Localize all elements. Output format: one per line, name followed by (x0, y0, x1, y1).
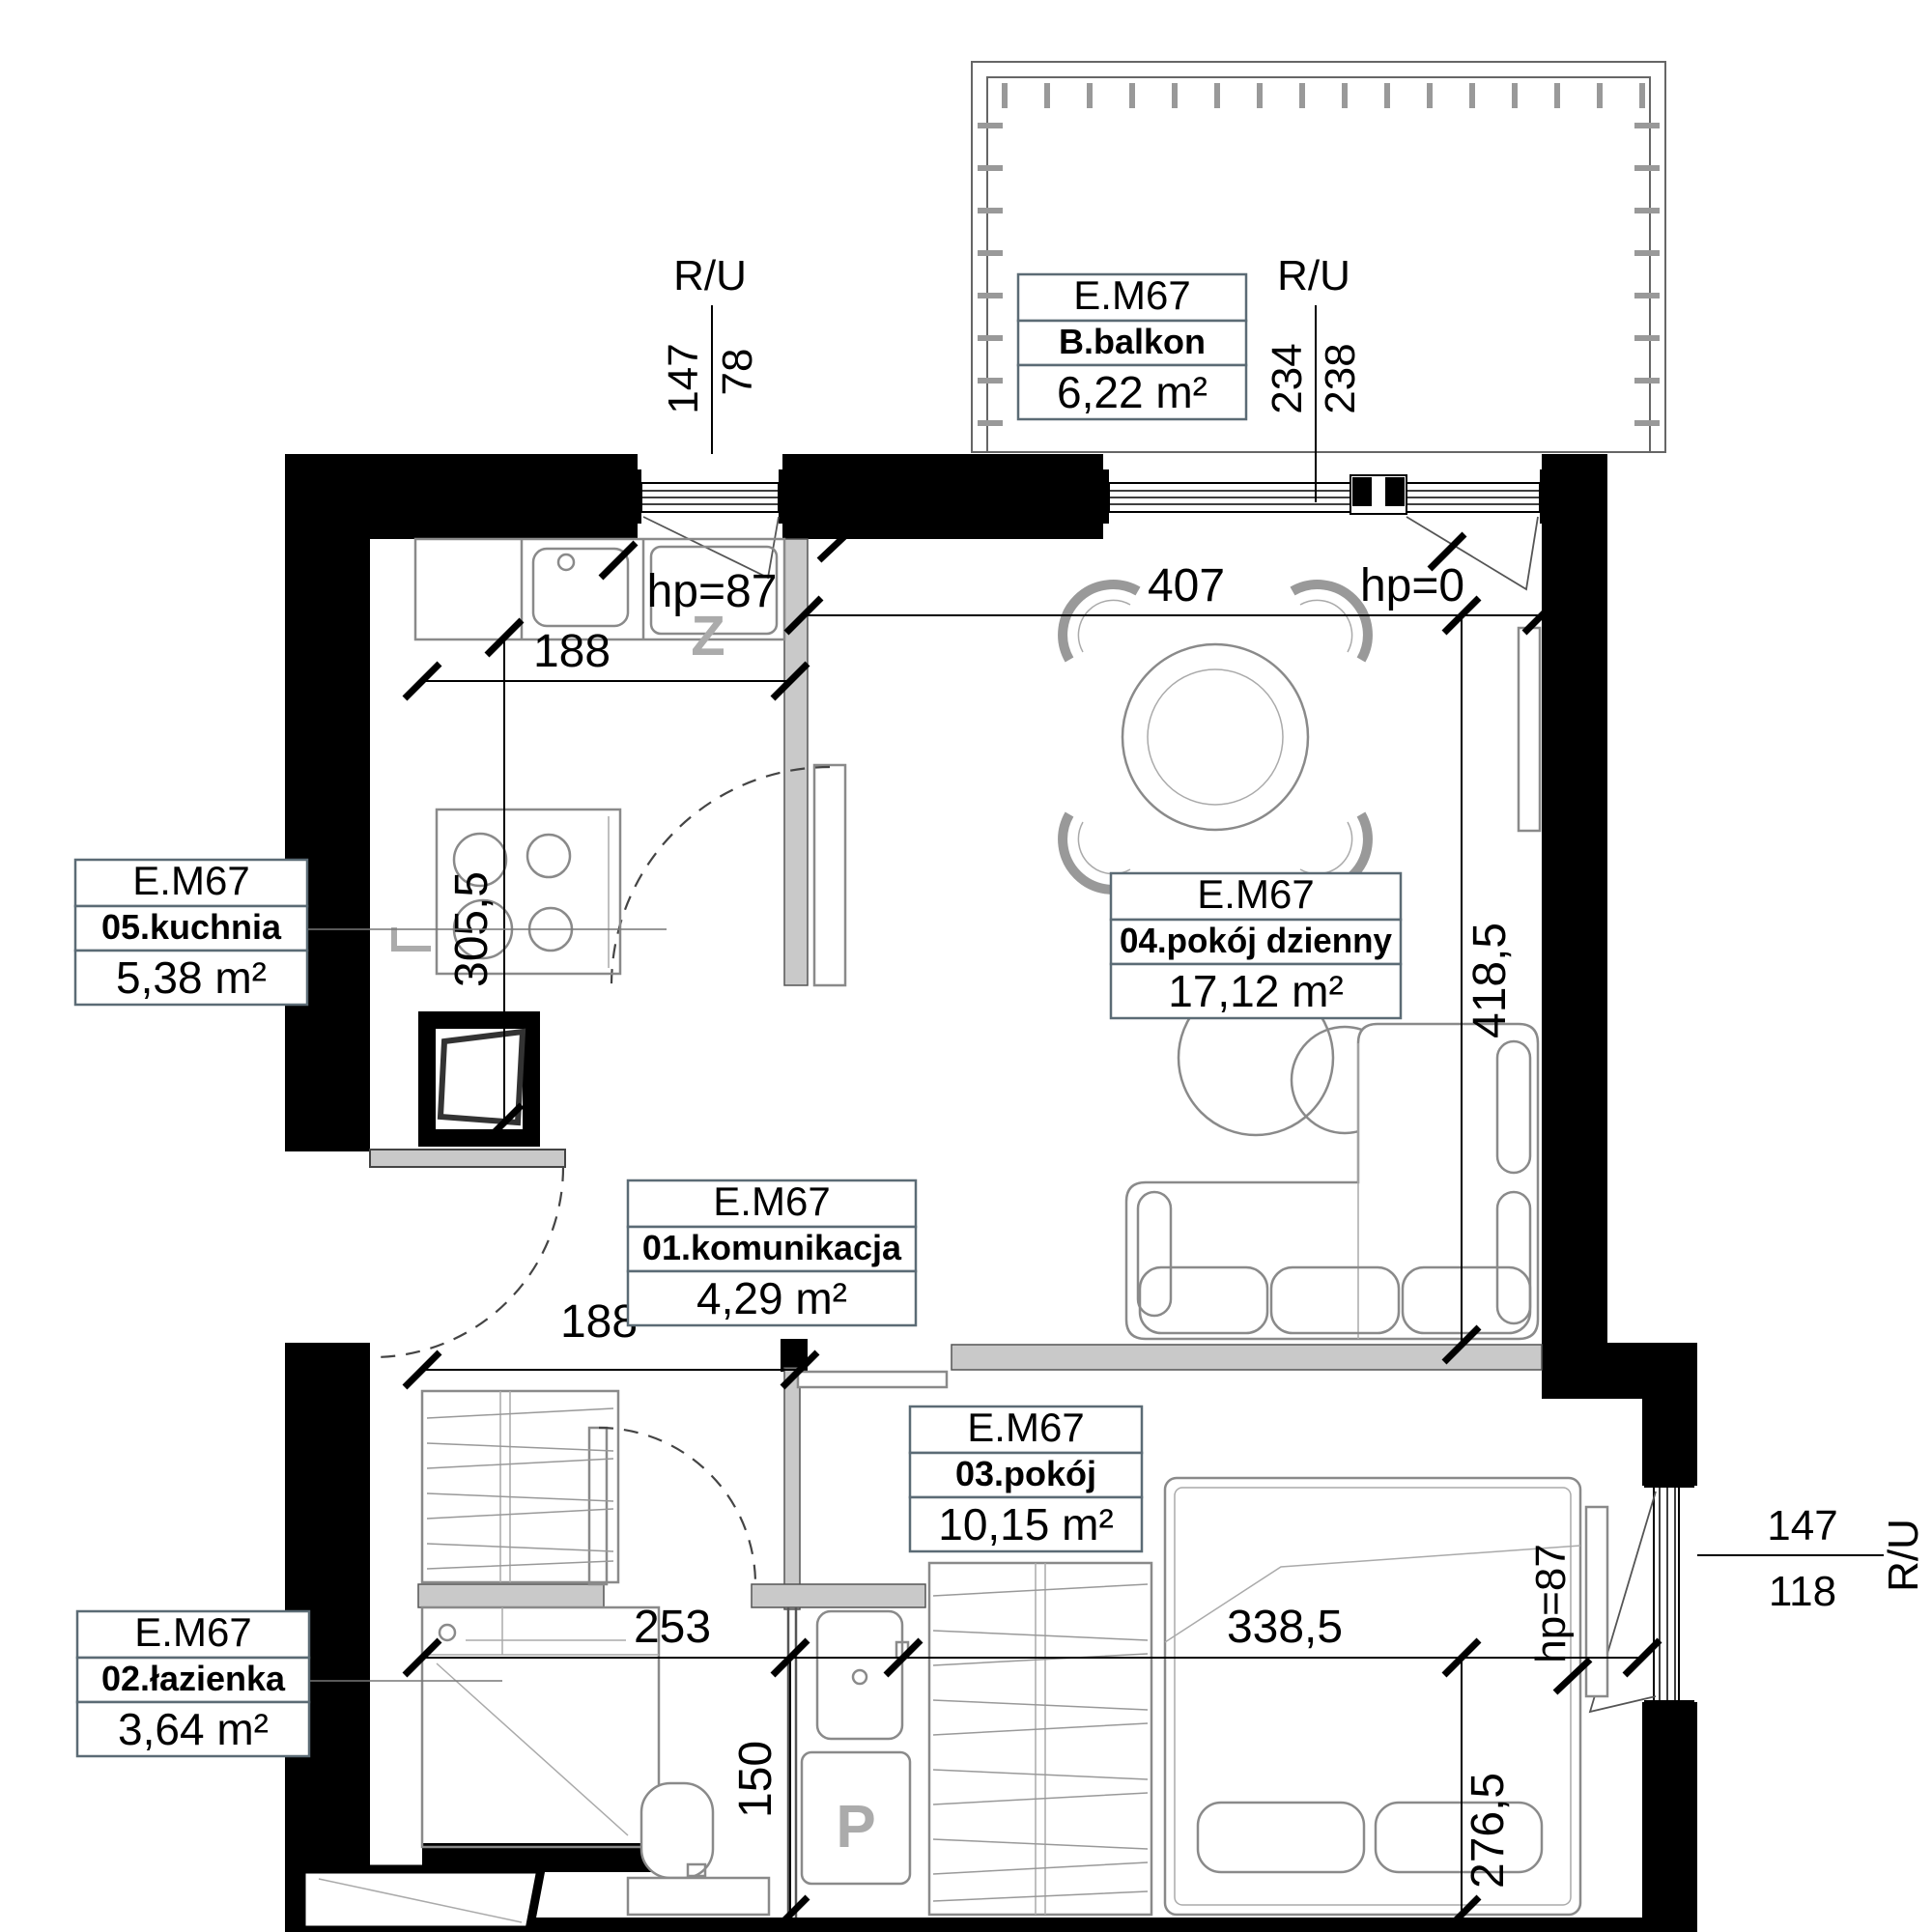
hall-wardrobe-hatch (427, 1408, 613, 1569)
ru-marker-balcony: R/U 234 238 (1264, 252, 1364, 502)
dim-bath-width: 253 (634, 1602, 711, 1653)
ru-marker-bedroom: 147 118 R/U (1697, 1502, 1927, 1615)
bed (1165, 1478, 1580, 1915)
kitchen-window-sill-label: hp=87 (647, 566, 778, 617)
washing-machine: P (802, 1752, 910, 1884)
floor-plan: P Z hp=87 407 hp=0 188 305,5 418,5 188 2… (0, 0, 1932, 1932)
bathroom-door (589, 1428, 755, 1584)
chair-se-inner (1300, 822, 1352, 874)
wall-top-middle (782, 454, 1103, 539)
dining-table-inner (1148, 669, 1283, 805)
ru-balcony-height: 238 (1317, 343, 1364, 413)
bedroom-sliding-door-leaf (798, 1372, 947, 1387)
ru-bedroom-width: 147 (1767, 1502, 1837, 1549)
balcony-door-mullion-a (1352, 477, 1372, 506)
ru-balcony-label: R/U (1277, 252, 1350, 299)
balkon-name: B.balkon (1059, 322, 1206, 361)
label-pokoj-dzienny: E.M67 04.pokój dzienny 17,12 m² (1111, 871, 1401, 1018)
chair-ne (1293, 584, 1368, 660)
ru-bedroom-label: R/U (1880, 1519, 1927, 1592)
label-pokoj: E.M67 03.pokój 10,15 m² (910, 1405, 1142, 1551)
partition-hall-bedroom (784, 1368, 800, 1609)
lazienka-name: 02.łazienka (101, 1659, 286, 1698)
chair-nw-inner (1078, 600, 1130, 652)
dining-table (1122, 644, 1308, 830)
dim-bedroom-width: 338,5 (1227, 1602, 1343, 1653)
bedroom-wardrobe-hatch (933, 1584, 1148, 1901)
ventilation-shaft (418, 1011, 540, 1147)
label-kuchnia: E.M67 05.kuchnia 5,38 m² (75, 858, 667, 1005)
pokoj-area: 10,15 m² (938, 1499, 1114, 1549)
bath-sink (817, 1611, 908, 1739)
bedroom-radiator (1586, 1507, 1607, 1696)
dim-living-width: 407 (1148, 560, 1225, 611)
toilet-tank (628, 1878, 769, 1915)
label-balkon: E.M67 B.balkon 6,22 m² (1018, 272, 1246, 419)
balcony-door-mullion-b (1385, 477, 1405, 506)
pokoj-dzienny-code: E.M67 (1197, 871, 1314, 917)
label-komunikacja: E.M67 01.komunikacja 4,29 m² (628, 1179, 916, 1325)
wall-bedroom-right-lower (1642, 1702, 1697, 1918)
balkon-area: 6,22 m² (1057, 367, 1207, 417)
bedroom-window-jamb-bottom (1644, 1700, 1694, 1719)
washing-machine-symbol: P (836, 1794, 875, 1861)
kitchen-door (611, 765, 845, 985)
kitchen-window-jamb-right (779, 469, 794, 524)
komunikacja-area: 4,29 m² (696, 1273, 847, 1323)
dim-bath-strip-depth: 150 (730, 1741, 781, 1818)
dining-chairs (1063, 584, 1368, 890)
vanity-faucet (440, 1625, 455, 1640)
entrance-door-swing (373, 1167, 563, 1357)
ru-balcony-width: 234 (1264, 343, 1311, 413)
wall-right-upper (1542, 539, 1607, 1343)
bedroom-window-jamb-top (1644, 1468, 1694, 1488)
bathtub-diagonal (437, 1663, 628, 1835)
bathroom-door-swing (599, 1428, 755, 1584)
living-radiator (1519, 628, 1540, 831)
kitchen-sink-faucet (558, 554, 574, 570)
komunikacja-code: E.M67 (713, 1179, 830, 1224)
ru-top-left-label: R/U (673, 252, 747, 299)
partition-bath-top-left (418, 1584, 604, 1607)
lazienka-area: 3,64 m² (118, 1704, 269, 1754)
dim-kitchen-width: 188 (533, 626, 611, 677)
kuchnia-area: 5,38 m² (116, 952, 267, 1003)
bedroom-window-sill-label: hp=87 (1527, 1544, 1575, 1663)
partition-bath-top-right (752, 1584, 925, 1607)
pokoj-code: E.M67 (967, 1405, 1084, 1450)
pokoj-name: 03.pokój (955, 1454, 1096, 1493)
balcony-door-jamb-right (1540, 469, 1555, 524)
balcony-door-jamb-left (1094, 469, 1109, 524)
dim-living-door-sill: hp=0 (1360, 560, 1464, 611)
komunikacja-name: 01.komunikacja (642, 1228, 902, 1267)
ru-top-left-height: 78 (714, 349, 761, 396)
bedroom-wardrobe (929, 1563, 1151, 1915)
pokoj-dzienny-area: 17,12 m² (1168, 966, 1344, 1016)
bathtub-vanity (422, 1607, 659, 1847)
bottom-recess (301, 1869, 541, 1930)
ru-bedroom-height: 118 (1769, 1568, 1836, 1615)
ru-marker-top-left: R/U 147 78 (660, 252, 761, 454)
chair-ne-inner (1300, 600, 1352, 652)
chair-sw-inner (1078, 822, 1130, 874)
balkon-code: E.M67 (1073, 272, 1190, 318)
kitchen-corner-symbol (394, 927, 431, 949)
kuchnia-code: E.M67 (132, 858, 249, 903)
kuchnia-name: 05.kuchnia (101, 907, 282, 947)
stove-burner-2 (527, 835, 570, 877)
kitchen-window-jamb-left (626, 469, 641, 524)
pokoj-dzienny-name: 04.pokój dzienny (1120, 921, 1392, 960)
bed-outline (1165, 1478, 1580, 1915)
entrance-door-leaf (370, 1150, 565, 1167)
kitchen-door-leaf (814, 765, 845, 985)
bath-sink-drain (853, 1670, 867, 1684)
wall-right-jut (1542, 1343, 1697, 1399)
chair-nw (1063, 584, 1138, 660)
entrance-door (370, 1150, 565, 1357)
dim-bedroom-depth: 276,5 (1463, 1773, 1514, 1889)
wall-left-upper (285, 454, 370, 1151)
ru-top-left-width: 147 (660, 343, 707, 413)
lazienka-code: E.M67 (134, 1609, 251, 1655)
bedroom-wardrobe-outline (929, 1563, 1151, 1915)
shaft-duct-symbol (440, 1032, 523, 1122)
dim-living-depth: 418,5 (1464, 923, 1516, 1038)
partition-kitchen-living (784, 539, 808, 985)
dim-hall-width: 188 (560, 1296, 638, 1348)
